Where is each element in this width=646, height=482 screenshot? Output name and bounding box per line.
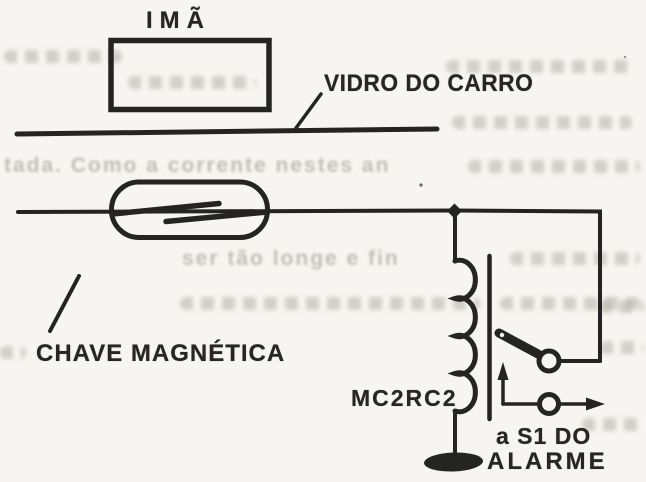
relay-contact-lower — [540, 395, 559, 414]
magnet-symbol — [111, 41, 269, 110]
relay-coil-label: MC2RC2 — [351, 387, 458, 410]
magnet-label: IMÃ — [146, 9, 211, 33]
relay-contact-upper — [539, 351, 559, 371]
alarm-destination-label-line2: ALARME — [487, 450, 608, 474]
magnetic-switch-label: CHAVE MAGNÉTICA — [36, 342, 285, 366]
circuit-linework — [0, 0, 646, 482]
output-right-arrowhead — [586, 398, 605, 411]
scan-speck — [419, 183, 422, 186]
relay-armature — [499, 333, 538, 354]
scanned-schematic-page: tada. Como a corrente nestes anser tão l… — [0, 0, 646, 482]
switch-pointer-line — [50, 276, 79, 331]
output-up-arrowhead — [498, 362, 509, 380]
scan-speck — [624, 56, 626, 58]
armature-pivot-speck — [500, 333, 504, 337]
relay-coil-symbol — [455, 260, 475, 412]
car-glass-label: VIDRO DO CARRO — [324, 72, 533, 96]
chassis-ground-symbol — [424, 451, 484, 472]
car-glass-line — [17, 129, 437, 134]
glass-pointer-line — [296, 94, 321, 128]
alarm-destination-label-line1: a S1 DO — [496, 425, 591, 448]
